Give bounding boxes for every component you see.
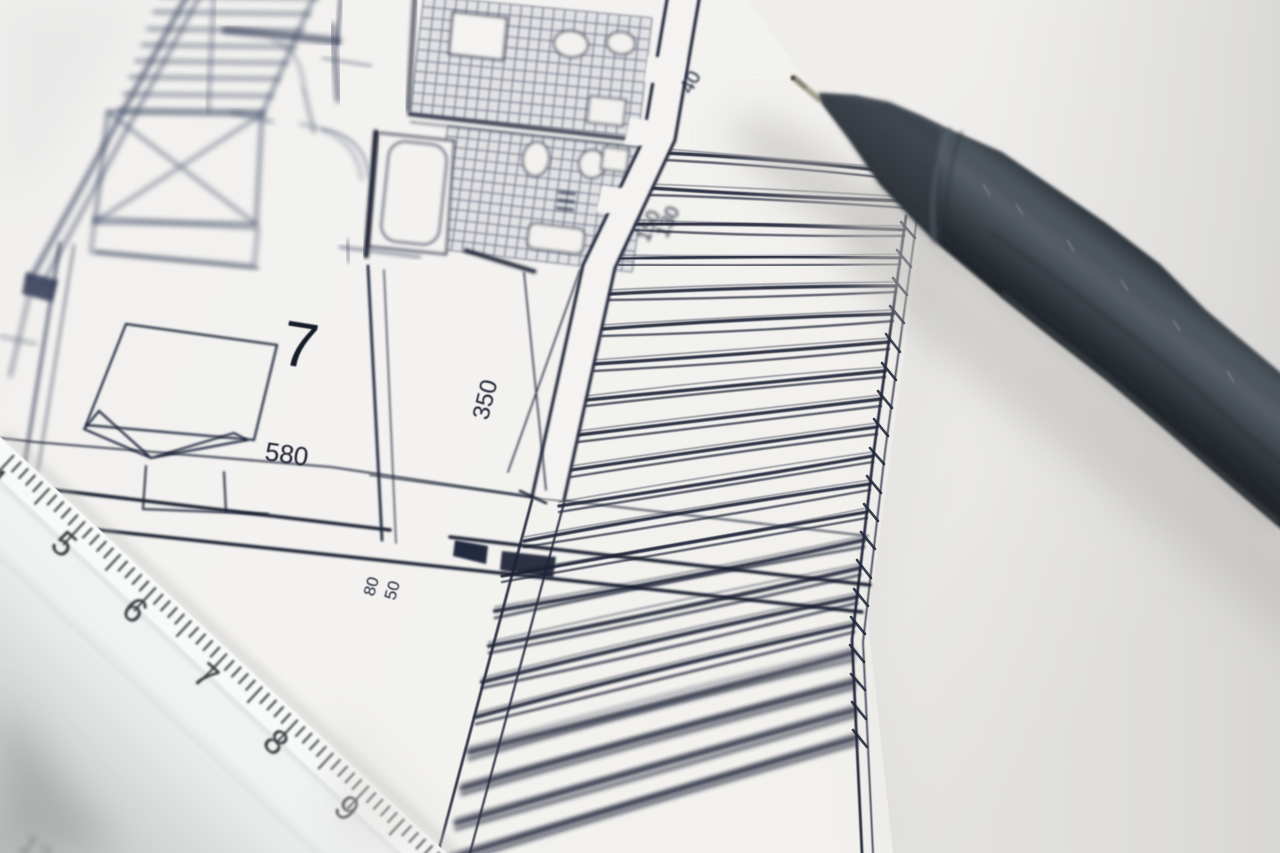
svg-text:580: 580 bbox=[263, 436, 310, 472]
